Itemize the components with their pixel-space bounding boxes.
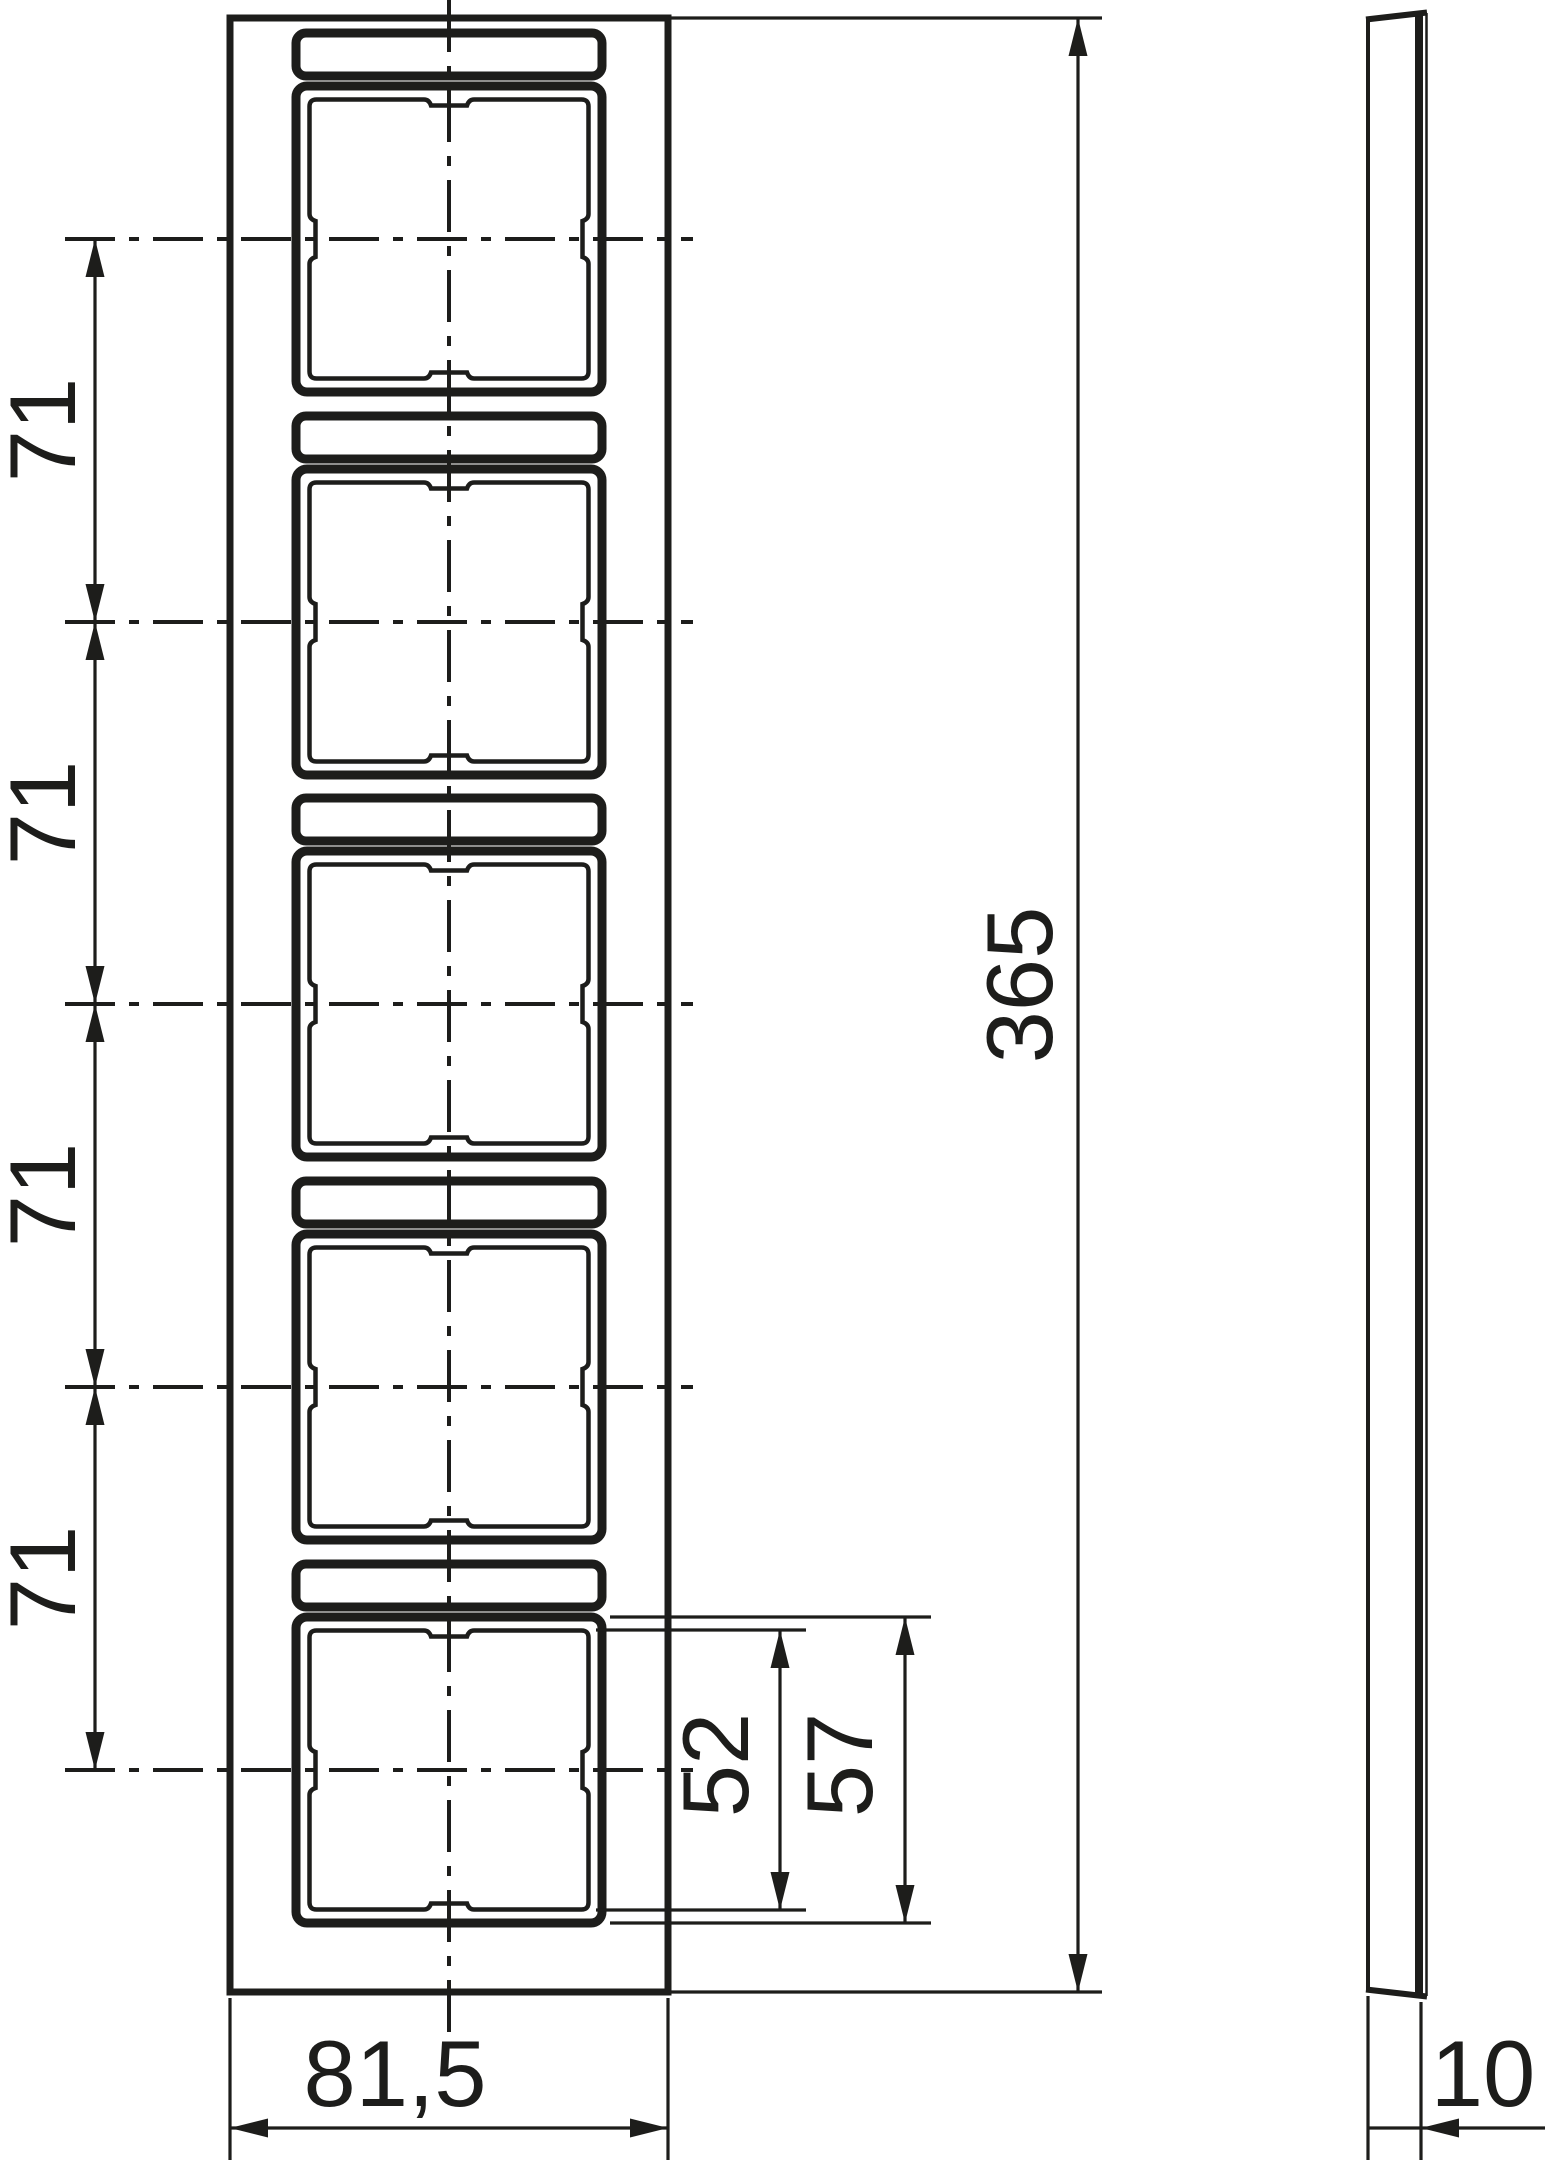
dim-label-pitch-2: 71 <box>0 761 95 866</box>
dim-label-pitch-1: 71 <box>0 378 95 483</box>
arrowhead <box>771 1872 790 1910</box>
arrowhead <box>630 2119 668 2138</box>
arrowhead <box>86 966 105 1004</box>
arrowhead <box>86 1004 105 1042</box>
dim-label-width: 81,5 <box>304 2021 487 2126</box>
arrowhead <box>86 1732 105 1770</box>
dim-label-pitch-3: 71 <box>0 1143 95 1248</box>
dimension-width-81-5: 81,5 <box>230 1998 668 2160</box>
arrowhead <box>896 1885 915 1923</box>
dimension-depth-10: 10 <box>1368 1996 1545 2160</box>
dim-label-height: 365 <box>967 907 1072 1064</box>
technical-drawing: 71 71 71 71 365 52 57 81,5 <box>0 0 1545 2160</box>
side-view <box>1366 12 1427 1997</box>
dim-label-inner: 52 <box>663 1713 768 1818</box>
arrowhead <box>1069 18 1088 56</box>
arrowhead <box>86 584 105 622</box>
drawing-sheet: 71 71 71 71 365 52 57 81,5 <box>0 0 1545 2160</box>
arrowhead <box>771 1630 790 1668</box>
arrowhead <box>230 2119 268 2138</box>
front-view <box>65 0 693 2045</box>
arrowhead <box>86 622 105 660</box>
arrowhead <box>896 1617 915 1655</box>
dim-label-outer: 57 <box>787 1713 892 1818</box>
arrowhead <box>86 239 105 277</box>
arrowhead <box>86 1349 105 1387</box>
dim-label-depth: 10 <box>1431 2021 1536 2126</box>
arrowhead <box>1069 1954 1088 1992</box>
arrowhead <box>86 1387 105 1425</box>
dimension-height-365: 365 <box>668 18 1102 1992</box>
dim-label-pitch-4: 71 <box>0 1526 95 1631</box>
